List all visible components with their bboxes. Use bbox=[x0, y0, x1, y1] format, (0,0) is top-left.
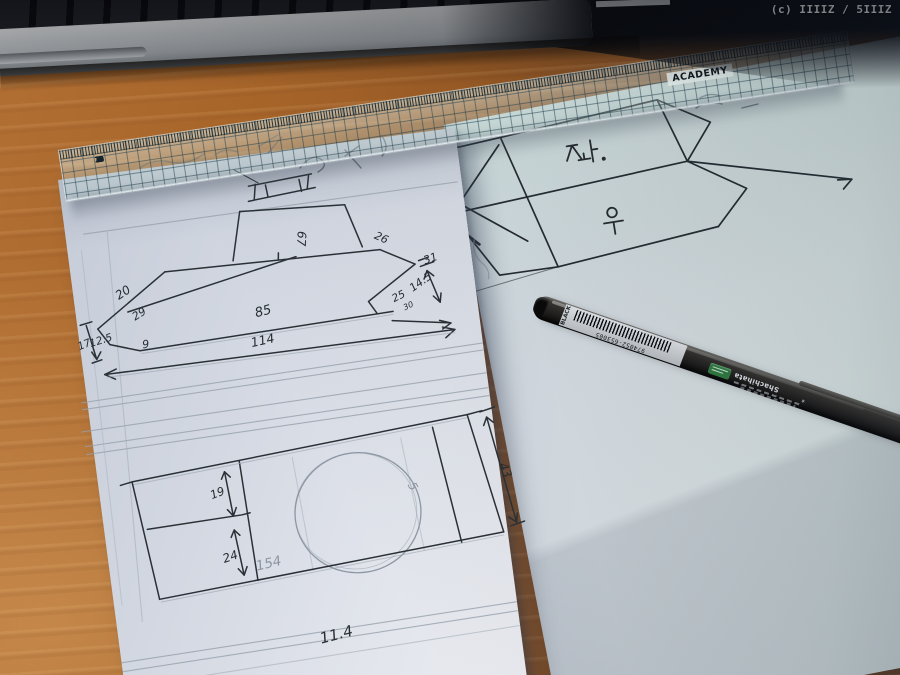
dim-deck-length: 67 bbox=[295, 231, 308, 247]
watermark-text: (c) IIIIZ / 5IIIZ bbox=[771, 3, 892, 16]
desk-scene: 좌. 우 bbox=[0, 0, 900, 675]
label-right-side: 우 bbox=[603, 208, 619, 225]
dim-nose-base: 9 bbox=[142, 339, 150, 351]
dim-hull-length: 85 bbox=[254, 303, 273, 320]
